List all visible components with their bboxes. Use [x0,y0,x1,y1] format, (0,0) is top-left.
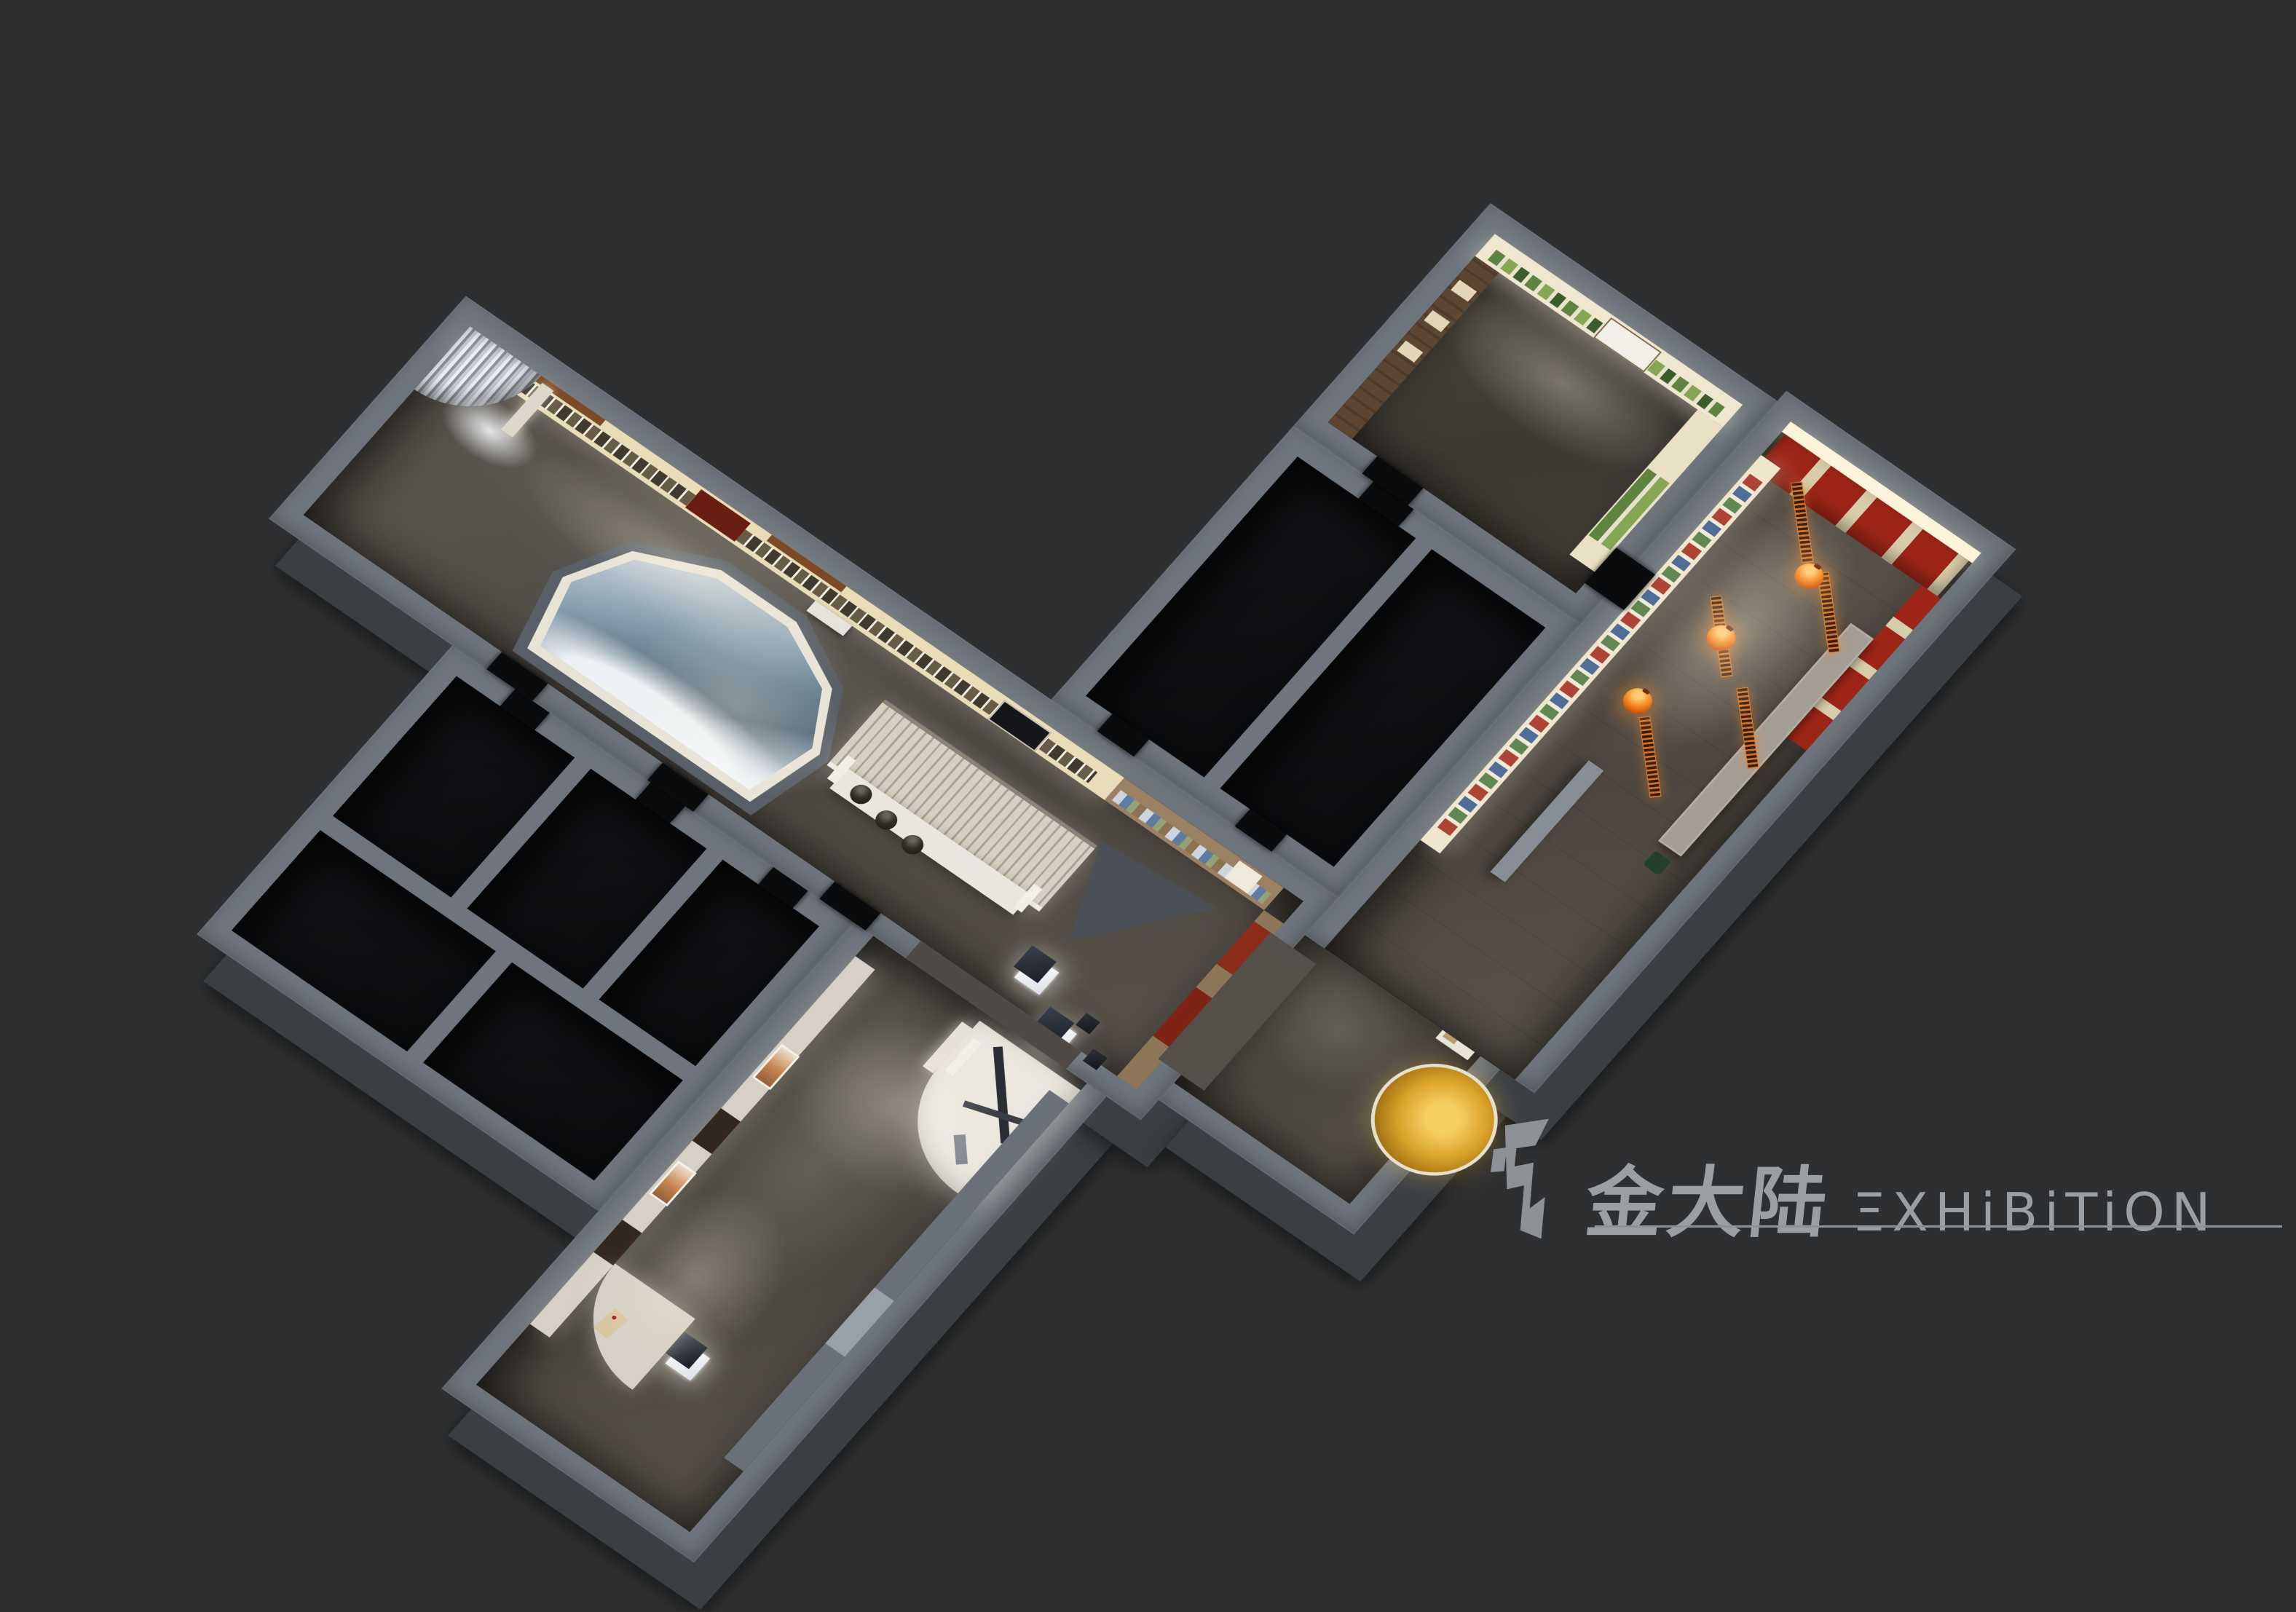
exhibition-floorplan-3d [0,0,2296,1612]
logo-underline [1595,1225,2282,1228]
brand-watermark: 金大陆 ΞXHiBiTiON [1478,1098,2287,1244]
wordmark-english: ΞXHiBiTiON [1853,1182,2217,1244]
angular-brand-mark-icon [1478,1117,1564,1244]
wordmark-chinese: 金大陆 [1582,1163,1835,1244]
render-canvas: 金大陆 ΞXHiBiTiON [0,0,2296,1612]
